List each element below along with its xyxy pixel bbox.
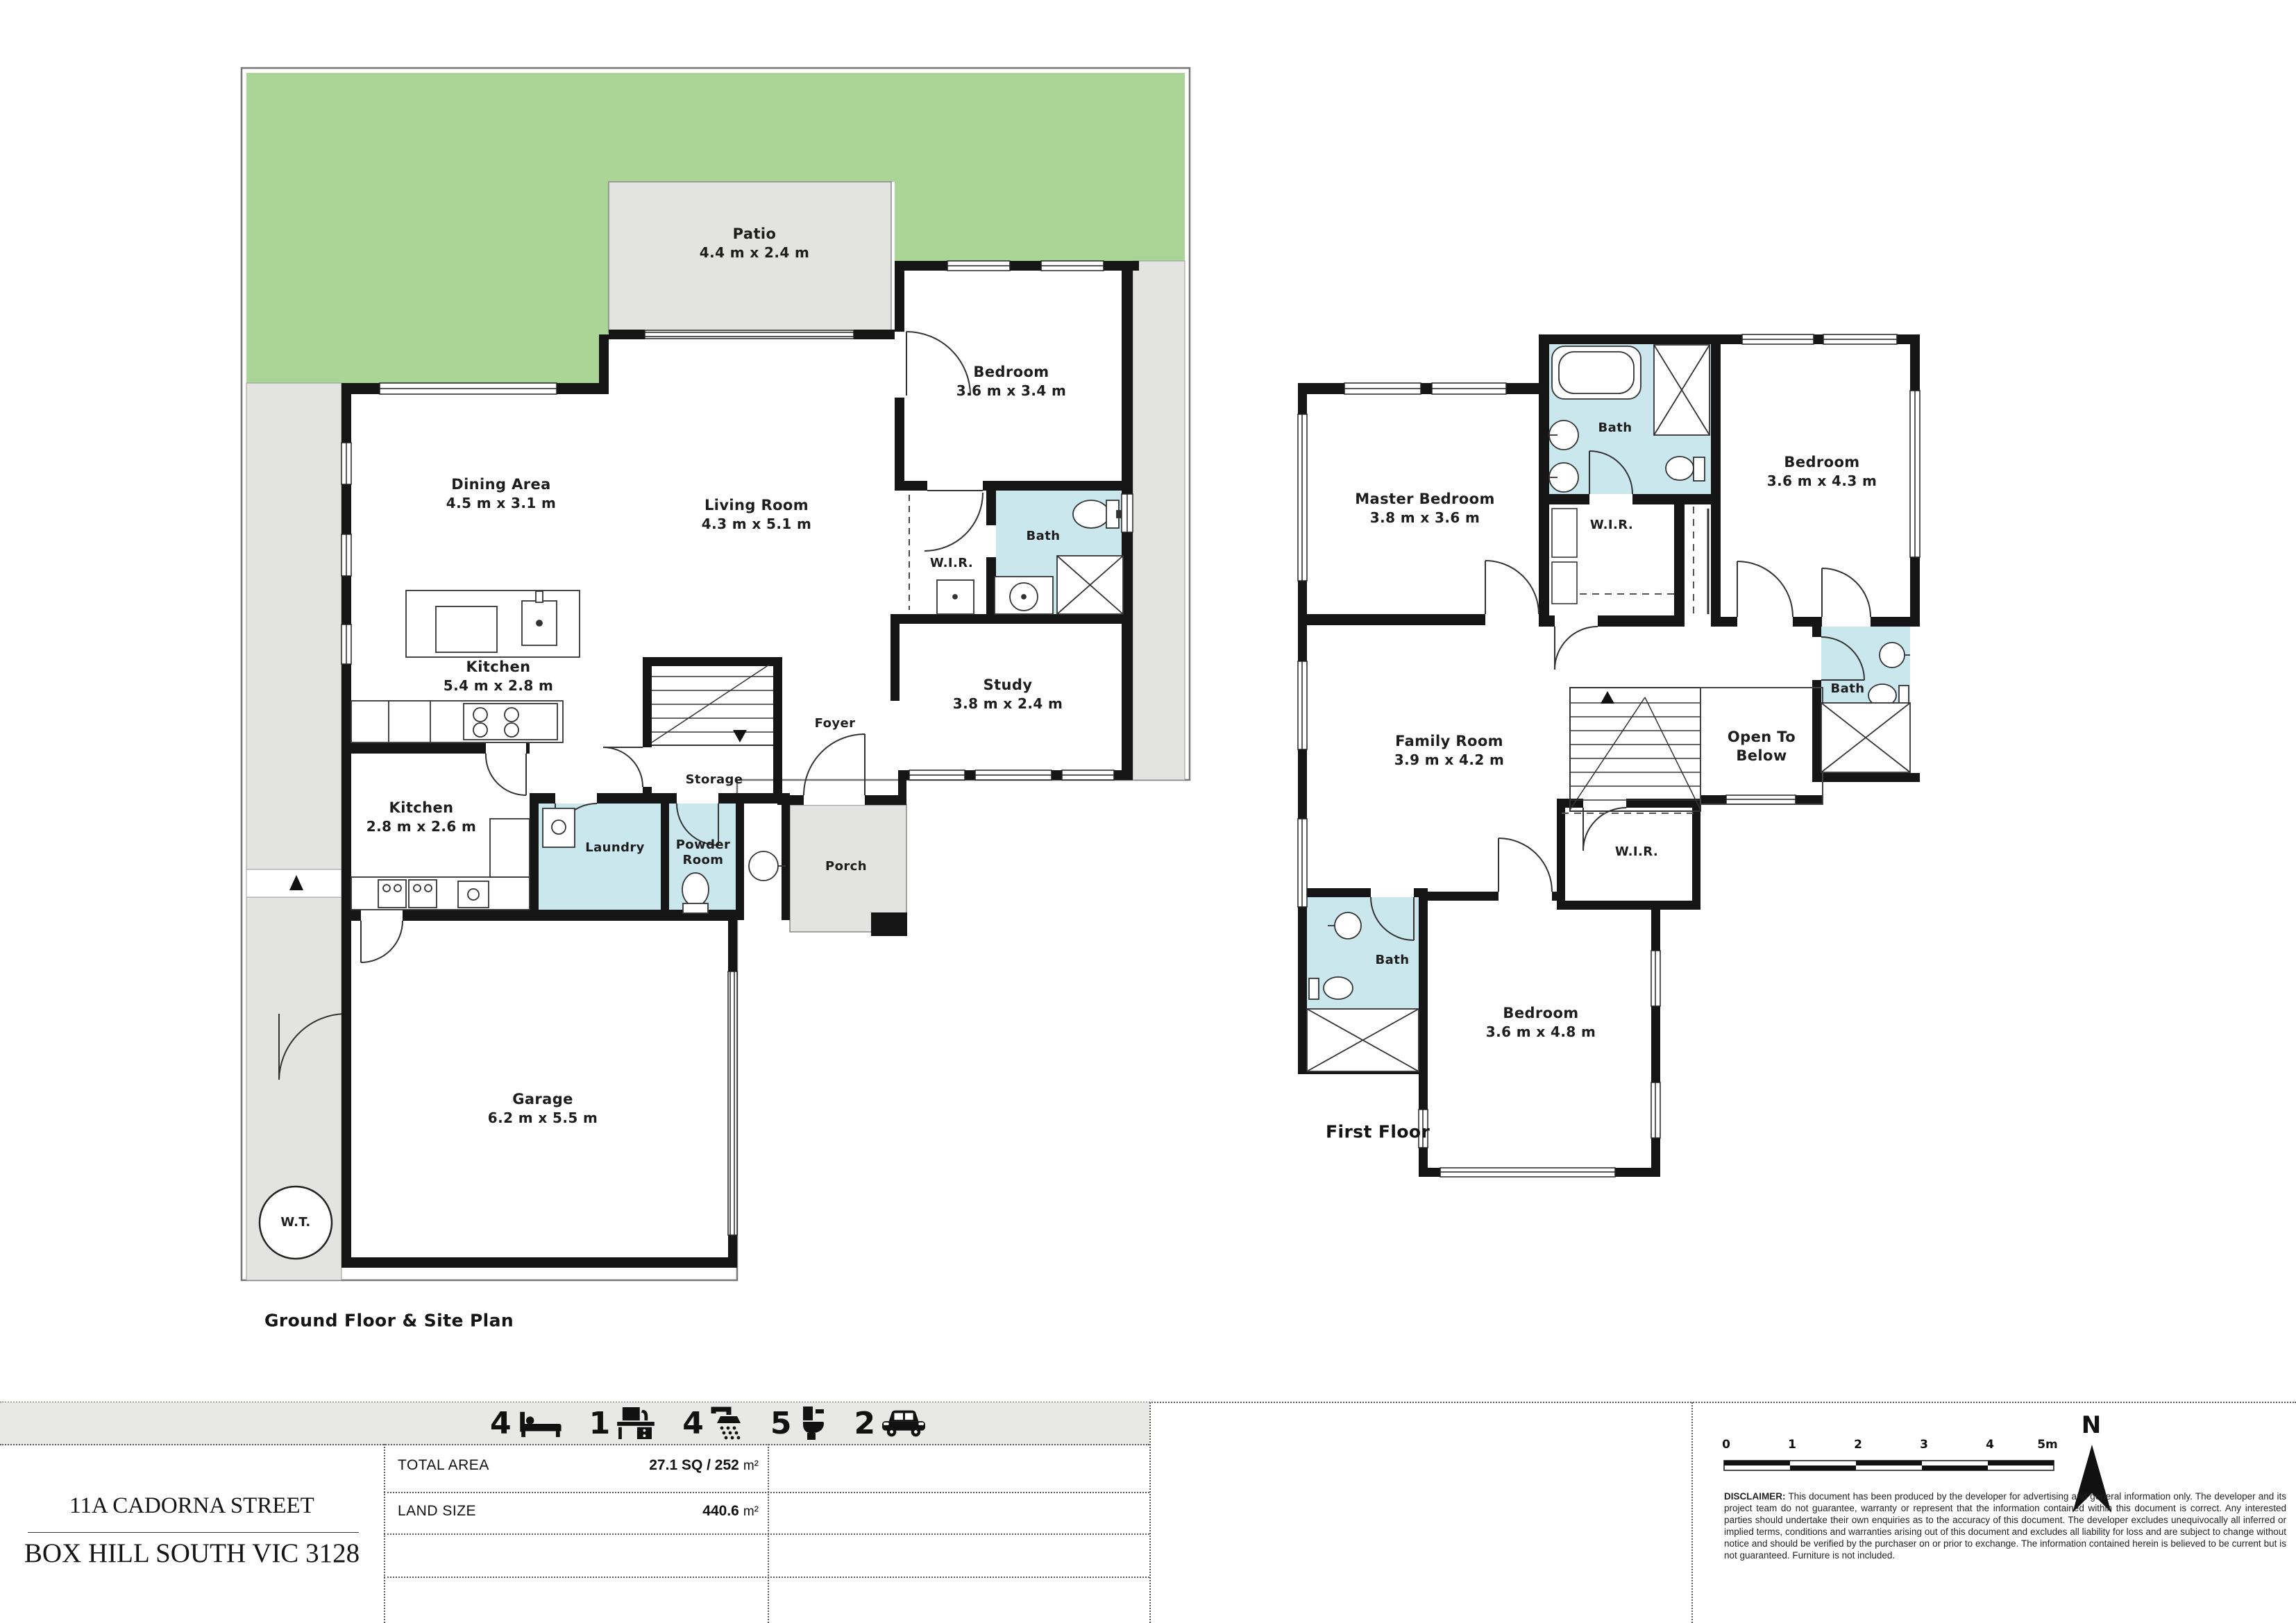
study-desk-icon [617,1407,655,1439]
room-label-wir-ground: W.I.R. [930,556,973,571]
shower-count: 4 [682,1406,704,1441]
address-line-1: 11A CADORNA STREET [0,1493,384,1519]
table-divider-4 [1691,1402,1693,1623]
room-label-study: Study3.8 m x 2.4 m [953,676,1063,713]
room-label-bedroom-ground: Bedroom3.6 m x 3.4 m [956,363,1067,400]
land-size-value: 440.6m² [702,1503,759,1520]
floorplan-document: Patio4.4 m x 2.4 m Bedroom3.6 m x 3.4 m … [0,0,2296,1623]
table-row-border-1 [384,1492,1149,1493]
car-count: 2 [854,1406,876,1441]
disclaimer-label: DISCLAIMER: [1724,1491,1786,1502]
room-label-bath-lower: Bath [1376,953,1410,968]
address-divider [28,1532,359,1533]
scale-tick-4: 4 [1986,1438,1994,1452]
land-size-label: LAND SIZE [398,1503,476,1520]
room-label-bath-mid: Bath [1831,681,1865,697]
first-stairs [1570,688,1700,811]
room-label-kitchen: Kitchen5.4 m x 2.8 m [444,658,554,695]
scale-bar [1724,1461,2054,1471]
disclaimer-text: DISCLAIMER: This document has been produ… [1724,1490,2286,1561]
room-label-kitchen2: Kitchen2.8 m x 2.6 m [366,799,477,836]
room-label-laundry: Laundry [585,840,645,856]
summary-study: 1 [589,1406,655,1441]
room-label-garage: Garage6.2 m x 5.5 m [488,1090,598,1128]
table-row-border-3 [384,1577,1149,1578]
shower-icon [711,1407,743,1440]
room-label-wir-top: W.I.R. [1590,518,1633,533]
room-label-dining: Dining Area4.5 m x 3.1 m [446,475,557,513]
total-area-value: 27.1 SQ / 252m² [649,1457,759,1474]
room-label-storage: Storage [686,772,743,788]
car-icon [882,1409,925,1438]
total-area-label: TOTAL AREA [398,1457,489,1474]
scale-tick-0: 0 [1722,1438,1730,1452]
summary-cars: 2 [854,1406,926,1441]
total-area-row: TOTAL AREA 27.1 SQ / 252m² [398,1457,759,1474]
table-divider-3 [1149,1402,1151,1623]
feature-summary-row: 4 1 4 [490,1402,925,1444]
summary-showers: 4 [682,1406,743,1441]
room-label-master: Master Bedroom3.8 m x 3.6 m [1355,490,1495,527]
scale-tick-1: 1 [1788,1438,1796,1452]
scale-tick-5: 5m [2037,1438,2058,1452]
room-label-bedroom3: Bedroom3.6 m x 4.8 m [1486,1004,1596,1042]
room-label-powder: Powder Room [661,838,745,868]
address-line-2: BOX HILL SOUTH VIC 3128 [0,1538,384,1569]
wir-top-cabinets [1552,509,1577,604]
room-label-living: Living Room4.3 m x 5.1 m [702,496,812,534]
room-label-patio: Patio4.4 m x 2.4 m [700,225,810,262]
bed-icon [518,1408,562,1438]
summary-toilets: 5 [770,1406,827,1441]
scale-tick-2: 2 [1854,1438,1862,1452]
summary-beds: 4 [490,1406,562,1441]
room-label-ensuite: Bath [1598,420,1632,436]
room-label-porch: Porch [825,859,867,874]
study-count: 1 [589,1406,611,1441]
room-label-wir-lower: W.I.R. [1615,844,1658,860]
bed-count: 4 [490,1406,512,1441]
table-row-border-2 [384,1533,1149,1535]
room-label-water-tank: W.T. [280,1215,310,1230]
scale-tick-3: 3 [1920,1438,1928,1452]
room-label-open-below: Open To Below [1710,728,1814,765]
room-label-bedroom2: Bedroom3.6 m x 4.3 m [1767,453,1877,491]
ground-floor-title: Ground Floor & Site Plan [264,1311,514,1331]
toilet-icon [799,1407,827,1440]
room-label-foyer: Foyer [815,716,856,731]
room-label-family: Family Room3.9 m x 4.2 m [1394,732,1505,770]
first-floor-title: First Floor [1326,1122,1430,1142]
toilet-count: 5 [770,1406,792,1441]
room-label-bath-ground: Bath [1027,529,1061,544]
north-label: N [2082,1411,2101,1439]
land-size-row: LAND SIZE 440.6m² [398,1503,759,1520]
first-floor-plan [0,0,2296,1623]
